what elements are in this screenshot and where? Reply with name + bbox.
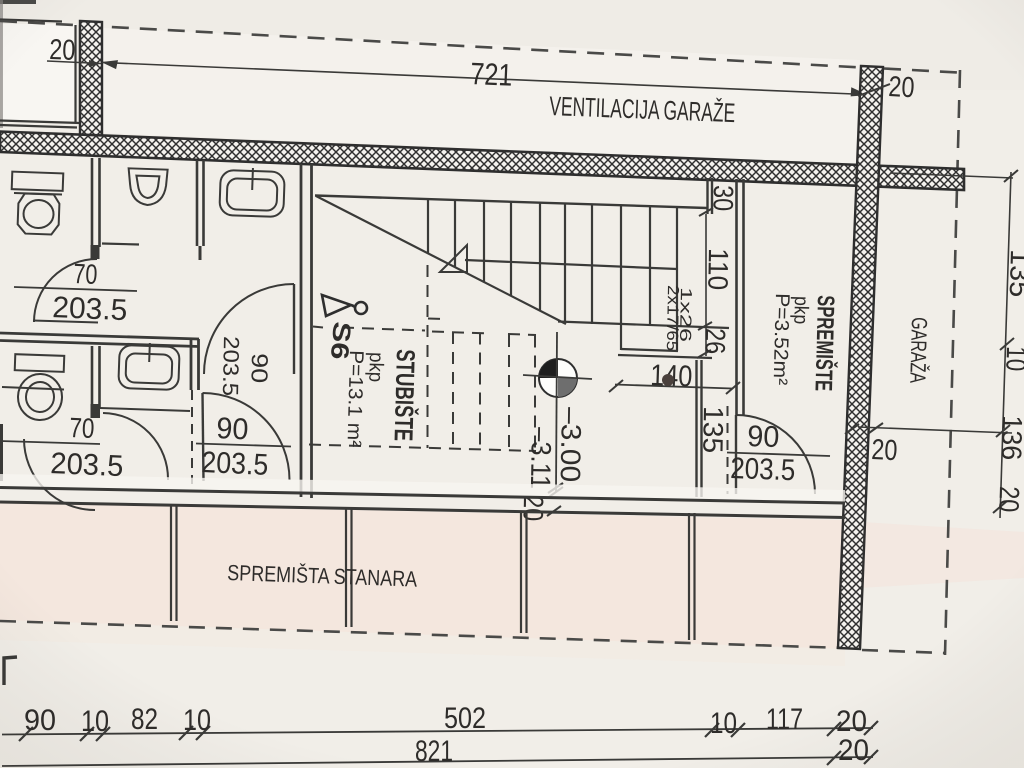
svg-text:S6: S6 [325,320,356,360]
svg-text:10: 10 [1000,346,1024,372]
svg-text:821: 821 [415,735,453,768]
svg-text:90: 90 [24,704,56,737]
svg-text:203.5: 203.5 [201,446,269,482]
svg-text:110: 110 [702,248,734,291]
svg-text:SPREMIŠTE: SPREMIŠTE [809,295,840,392]
svg-text:10: 10 [710,707,737,740]
svg-text:502: 502 [444,702,486,735]
svg-text:–3.00: –3.00 [555,407,587,483]
svg-text:10: 10 [81,705,109,738]
svg-text:90: 90 [246,353,273,383]
svg-text:30: 30 [708,185,739,212]
svg-text:20: 20 [871,434,898,467]
svg-text:90: 90 [216,412,249,446]
svg-text:135: 135 [1004,249,1024,298]
svg-text:721: 721 [470,56,513,93]
svg-text:135: 135 [697,406,729,454]
svg-text:20: 20 [888,71,916,104]
svg-text:90: 90 [747,420,780,454]
svg-text:203.5: 203.5 [218,336,244,396]
svg-text:STUBIŠTE: STUBIŠTE [389,349,421,442]
svg-text:70: 70 [73,258,98,290]
svg-text:P=3.52m²: P=3.52m² [769,293,793,386]
svg-text:20: 20 [993,486,1024,513]
svg-text:26: 26 [700,328,731,355]
svg-text:GARAŽA: GARAŽA [905,317,932,384]
svg-text:10: 10 [183,704,211,737]
svg-text:70: 70 [69,412,95,444]
svg-text:203.5: 203.5 [730,452,796,487]
svg-text:20: 20 [838,734,869,767]
svg-text:–3.11: –3.11 [525,427,557,490]
svg-text:82: 82 [131,703,158,736]
svg-text:203.5: 203.5 [52,291,128,327]
svg-text:117: 117 [766,703,803,736]
svg-text:136: 136 [996,415,1024,461]
svg-text:P=13.1 m²: P=13.1 m² [342,350,367,448]
svg-text:2x17/65: 2x17/65 [663,285,681,351]
